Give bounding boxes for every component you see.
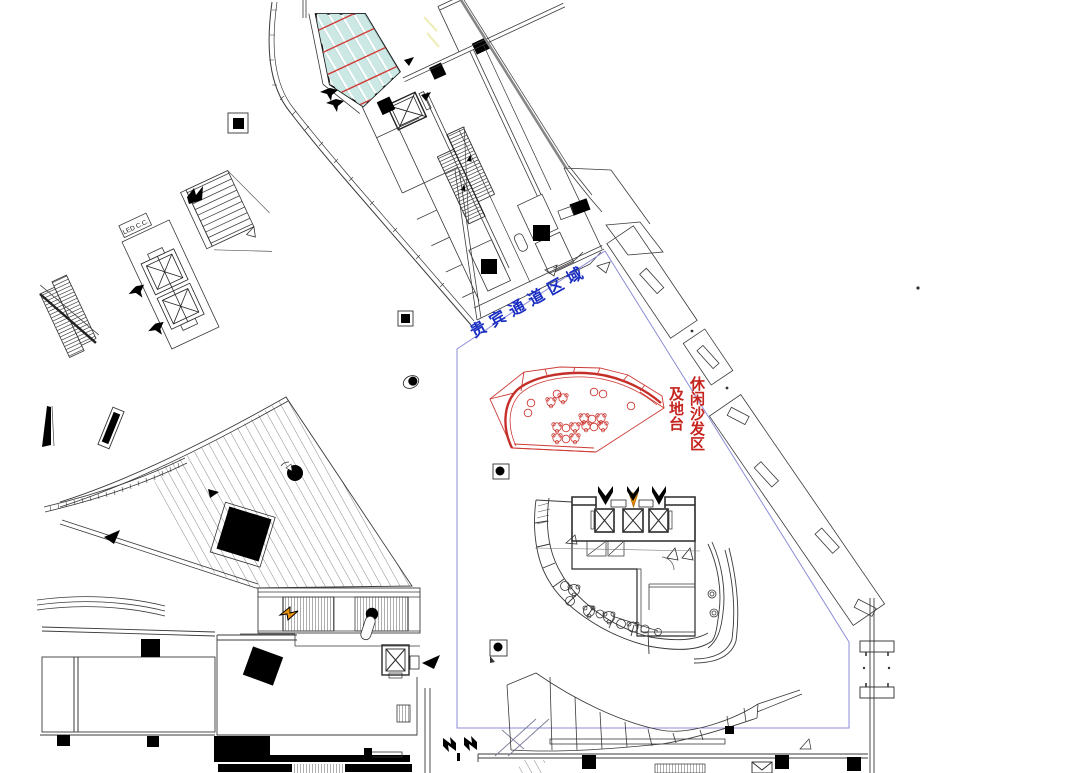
svg-text:区: 区 bbox=[690, 436, 705, 453]
svg-text:台: 台 bbox=[669, 415, 684, 433]
